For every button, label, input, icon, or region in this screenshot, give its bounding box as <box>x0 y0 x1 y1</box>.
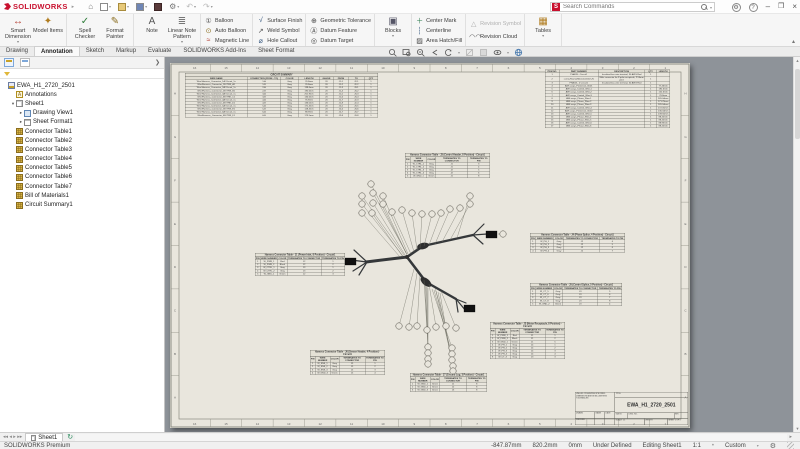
tree-item-label: Sheet Format1 <box>33 119 73 125</box>
flyout-caret-icon[interactable]: ▾ <box>17 40 19 44</box>
tab-annotation[interactable]: Annotation <box>34 46 80 56</box>
units-selector[interactable]: Custom <box>725 443 746 449</box>
filter-icon[interactable] <box>4 72 10 76</box>
open-button[interactable]: ▾ <box>118 3 129 11</box>
format-painter-icon: ✎ <box>111 16 119 28</box>
table-cell: W_CT_3 <box>495 356 510 359</box>
vertical-scroll-thumb[interactable] <box>795 69 800 139</box>
balloon-leader <box>362 213 400 257</box>
geometric-tolerance-button[interactable]: ⊕Geometric Tolerance <box>309 16 371 25</box>
tab-evaluate[interactable]: Evaluate <box>142 46 177 56</box>
scroll-up-icon[interactable]: ▲ <box>794 58 800 63</box>
balloon-icon: ① <box>204 17 213 25</box>
tree-item-drawing-view1[interactable]: ▸Drawing View1 <box>0 109 164 118</box>
table-cell: 17 <box>545 125 559 128</box>
display-style-icon[interactable] <box>479 48 488 57</box>
table-row: 4W_PH_4GrayJ27 <box>530 249 625 252</box>
button-label: Surface Finish <box>267 18 302 24</box>
table-cell: W_GND_2 <box>535 302 553 305</box>
balloon-leader <box>429 213 441 245</box>
tree-filter-row <box>0 69 164 79</box>
balloon-leader <box>392 212 411 254</box>
balloon[interactable] <box>425 361 431 367</box>
tree-item-label: Connector Table1 <box>25 129 72 135</box>
table-cell: W_GND_3 <box>315 371 330 374</box>
tree-item-connector-table5[interactable]: Connector Table5 <box>0 164 164 173</box>
hole-callout-button[interactable]: ⌀Hole Callout <box>256 36 302 45</box>
zone-label: 11 <box>350 422 353 426</box>
previous-view-icon[interactable] <box>430 48 439 57</box>
ribbon-group: ↔Smart Dimension▾✦Model Items <box>0 14 67 46</box>
balloon[interactable] <box>449 351 455 357</box>
options-gear-button[interactable]: ⚙ <box>732 3 741 12</box>
minimize-button[interactable]: – <box>766 0 770 14</box>
balloon[interactable] <box>369 210 375 216</box>
table-cell: Insulated bus wire terminal, 30 AWG Red <box>598 82 645 85</box>
home-button[interactable]: ⌂ <box>88 2 93 11</box>
table-cell: Wire/Harness_Connector_6B /TRK_F1 <box>185 114 247 117</box>
tab-markup[interactable]: Markup <box>110 46 142 56</box>
button-label: Revision Cloud <box>480 34 517 40</box>
zone-label: C <box>684 309 687 313</box>
balloon-leader <box>409 273 417 327</box>
sheet-tab-icon <box>31 435 36 441</box>
zone-label: E <box>684 222 686 226</box>
app-edition-label: SOLIDWORKS Premium <box>0 443 70 449</box>
search-logo-icon: S <box>552 3 560 11</box>
ribbon-group: √Surface Finish↗Weld Symbol⌀Hole Callout <box>253 14 306 46</box>
tree-item-ewa-h1-2720-2501[interactable]: EWA_H1_2720_2501 <box>0 81 164 90</box>
ribbon-collapse-icon[interactable]: ▴ <box>792 38 795 45</box>
table-row: 5W_GND_2GreenJ34 <box>530 302 622 305</box>
balloon[interactable] <box>419 211 425 217</box>
balloon[interactable] <box>414 323 420 329</box>
area-hatch-fill-button[interactable]: ▨Area Hatch/Fill <box>415 36 462 45</box>
datum-feature-icon: Ⓐ <box>309 26 318 36</box>
table-row: 4W_GND_3GreenJ54 <box>310 371 385 374</box>
harness-segment[interactable] <box>473 234 487 235</box>
balloon[interactable] <box>425 350 431 356</box>
weld-symbol-button[interactable]: ↗Weld Symbol <box>256 26 302 35</box>
cursor-x: -847.87mm <box>491 443 521 449</box>
ribbon-group: ✓Spell Checker✎Format Painter <box>67 14 134 46</box>
balloon[interactable] <box>449 357 455 363</box>
harness-segment[interactable] <box>423 235 473 246</box>
table-cell: J1 <box>436 175 468 178</box>
balloon-leader <box>434 290 452 354</box>
save-button[interactable]: ▾ <box>136 3 147 11</box>
dropdown-caret-icon[interactable]: ▾ <box>458 50 460 55</box>
blocks-icon: ▣ <box>388 16 397 28</box>
datum-feature-button[interactable]: ⒶDatum Feature <box>309 26 371 35</box>
note-button[interactable]: ANote <box>137 15 167 34</box>
balloon-leader <box>424 214 432 246</box>
balloon[interactable] <box>500 231 506 237</box>
balloon[interactable] <box>368 181 374 187</box>
zone-label: 8 <box>445 422 447 426</box>
table-cell: 4 <box>365 371 385 374</box>
table-cell: Green <box>553 302 563 305</box>
table-row: 5W_GND_1GreenJ18 <box>405 175 490 178</box>
zone-label: A <box>174 395 176 399</box>
table-cell: 3 <box>321 272 345 275</box>
ribbon-group: △Revision Symbol◠◠Revision Cloud <box>466 14 525 46</box>
zone-label: D <box>174 265 177 269</box>
table-cell: Green <box>278 272 287 275</box>
balloon-leader <box>383 196 408 254</box>
balloon[interactable] <box>438 210 444 216</box>
title-block-cell <box>595 418 605 425</box>
balloon[interactable] <box>443 323 449 329</box>
tab-drawing[interactable]: Drawing <box>0 46 34 56</box>
tree-item-connector-table6[interactable]: Connector Table6 <box>0 173 164 182</box>
title-block-cell: EWA_H1_2720_2501 <box>615 398 688 413</box>
balloon[interactable] <box>447 206 453 212</box>
sheet-nav-buttons[interactable]: ◂◂ ◂ ▸ ▸▸ <box>0 434 25 440</box>
balloon-button[interactable]: ①Balloon <box>204 16 249 25</box>
spell-checker-button[interactable]: ✓Spell Checker <box>70 15 100 40</box>
magnetic-line-icon: ≈ <box>204 37 213 44</box>
panel-tabs: ❯ <box>0 57 164 69</box>
window-controls: ⚙ ? – ❒ × <box>732 0 797 14</box>
new-doc-icon <box>100 3 108 11</box>
tree-item-label: Connector Table6 <box>25 174 72 180</box>
menu-expand-icon[interactable]: ▸ <box>72 4 75 10</box>
balloon[interactable] <box>370 190 376 196</box>
table-cell: W_GND_1 <box>410 175 427 178</box>
connector-label[interactable] <box>486 231 497 238</box>
harness-segment[interactable] <box>473 224 484 235</box>
flyout-caret-icon[interactable]: ▾ <box>181 40 183 44</box>
display-manager-tab-icon[interactable] <box>20 58 30 67</box>
balloon[interactable] <box>359 193 365 199</box>
tree-item-connector-table4[interactable]: Connector Table4 <box>0 155 164 164</box>
tree-item-circuit-summary1[interactable]: Circuit Summary1 <box>0 200 164 209</box>
ribbon-group: ▣Blocks▾ <box>375 14 412 46</box>
table-cell: Green <box>330 371 339 374</box>
zone-label: 13 <box>287 66 291 70</box>
tab-sketch[interactable]: Sketch <box>80 46 110 56</box>
close-button[interactable]: × <box>792 0 797 14</box>
options-button[interactable]: ⚙▾ <box>169 2 179 11</box>
linear-note-pattern-icon: ≣ <box>178 16 186 28</box>
table-cell: 8 <box>467 389 487 392</box>
connector-table-2[interactable]: Harness Connector Table - J1 (Power Inle… <box>255 253 345 276</box>
balloon[interactable] <box>380 201 386 207</box>
button-label: Model Items <box>33 28 63 34</box>
solidworks-logo[interactable]: SOLIDWORKS ▸ <box>4 2 74 11</box>
ribbon-group: ANote≣Linear Note Pattern▾ <box>134 14 201 46</box>
panel-expand-icon[interactable]: ❯ <box>155 59 160 66</box>
search-icon[interactable] <box>701 4 708 11</box>
auto-balloon-button[interactable]: ⊙Auto Balloon <box>204 26 249 35</box>
solidworks-logo-icon <box>4 3 11 10</box>
zoom-area-icon[interactable] <box>402 48 411 57</box>
centerline-icon: ┆ <box>415 27 424 35</box>
feature-tree: EWA_H1_2720_2501AAnnotations▾Sheet1▸Draw… <box>0 79 164 210</box>
bill-of-materials-table[interactable]: ITEM NO.PART NUMBERDESCRIPTIONQTY.LENGTH… <box>545 70 670 128</box>
table-cell: Gray <box>554 249 564 252</box>
zone-label: 14 <box>256 422 260 426</box>
button-label: Revision Symbol <box>480 21 521 27</box>
table-icon <box>16 128 23 135</box>
feature-manager-panel: ❯ EWA_H1_2720_2501AAnnotations▾Sheet1▸Dr… <box>0 57 165 432</box>
zone-label: H <box>174 92 176 96</box>
table-cell <box>598 125 645 128</box>
table-row: 17AWI assys_Phase_Wire-6188.45mm <box>545 125 670 128</box>
search-dropdown-icon[interactable]: ▾ <box>710 5 712 10</box>
table-cell: 1 <box>364 114 378 117</box>
zoom-inout-icon[interactable] <box>416 48 425 57</box>
view-orientation-icon[interactable] <box>514 48 523 57</box>
title-bar: SOLIDWORKS ▸ ⌂ ▾ ▾ ▾ ⚙▾ ↶▾ ↷▾ S ▾ ⚙ ? – … <box>0 0 800 14</box>
table-cell: 4 <box>598 302 622 305</box>
scroll-down-icon[interactable]: ▼ <box>794 426 800 431</box>
tab-sheet-format[interactable]: Sheet Format <box>252 46 300 56</box>
balloon[interactable] <box>453 325 459 331</box>
definition-state: Under Defined <box>593 443 632 449</box>
balloon[interactable] <box>429 211 435 217</box>
area-hatch-icon: ▨ <box>415 37 424 45</box>
linear-note-pattern-button[interactable]: ≣Linear Note Pattern▾ <box>167 15 197 44</box>
title-block-cell: WEIGHT: <box>644 418 667 425</box>
balloon[interactable] <box>406 324 412 330</box>
connector-table-6[interactable]: Harness Connector Table - J6 (Sensor Hea… <box>310 350 385 375</box>
button-label: Centerline <box>426 28 451 34</box>
connector-table-4[interactable]: Harness Connector Table - J5 (Control Sp… <box>530 283 622 306</box>
smart-dimension-button[interactable]: ↔Smart Dimension▾ <box>3 15 33 44</box>
model-items-button[interactable]: ✦Model Items <box>33 15 63 34</box>
table-cell: J3 <box>563 302 598 305</box>
balloon-leader <box>412 213 417 250</box>
zone-label: 14 <box>256 66 260 70</box>
balloon-leader <box>420 214 422 248</box>
tree-item-annotations[interactable]: AAnnotations <box>0 90 164 99</box>
title-block-cell: UNLESS OTHERWISE SPECIFIED:DIMENSIONS AR… <box>575 392 615 412</box>
balloon[interactable] <box>359 201 365 207</box>
revision-cloud-button[interactable]: ◠◠Revision Cloud <box>469 33 521 42</box>
tree-item-connector-table7[interactable]: Connector Table7 <box>0 182 164 191</box>
table-icon <box>16 146 23 153</box>
datum-target-button[interactable]: ◎Datum Target <box>309 36 371 45</box>
vertical-scrollbar[interactable]: ▲ ▼ <box>793 57 800 432</box>
connector-table-7[interactable]: Harness Connector Table - J7 (Ground Lug… <box>410 373 487 392</box>
zone-label: 4 <box>570 422 572 426</box>
print-icon <box>154 3 162 11</box>
status-gear-icon[interactable]: ⚙ <box>770 442 776 449</box>
weld-symbol-icon: ↗ <box>256 27 265 35</box>
zone-label: 8 <box>445 66 447 70</box>
connector-table-3[interactable]: Harness Connector Table - J4 (Phase Spli… <box>530 233 625 252</box>
solidworks-window: SOLIDWORKS ▸ ⌂ ▾ ▾ ▾ ⚙▾ ↶▾ ↷▾ S ▾ ⚙ ? – … <box>0 0 800 449</box>
view-icon <box>24 110 31 117</box>
balloon[interactable] <box>396 323 402 329</box>
graphics-area[interactable]: 1616151514141313121211111010998877665544… <box>165 57 793 432</box>
table-cell: J2 <box>564 249 600 252</box>
surface-finish-button[interactable]: √Surface Finish <box>256 16 302 25</box>
revision-symbol-button[interactable]: △Revision Symbol <box>469 19 521 28</box>
tree-item-connector-table1[interactable]: Connector Table1 <box>0 127 164 136</box>
zone-label: 10 <box>381 66 385 70</box>
connector-label[interactable] <box>464 305 475 312</box>
zone-label: H <box>684 92 686 96</box>
table-cell: J2 <box>287 272 321 275</box>
rebuild-icon[interactable]: ↻ <box>67 433 73 441</box>
quick-access-toolbar: ⌂ ▾ ▾ ▾ ⚙▾ ↶▾ ↷▾ <box>88 2 213 11</box>
flyout-caret-icon[interactable]: ▾ <box>392 34 394 38</box>
dropdown-caret-icon[interactable]: ▾ <box>507 50 509 55</box>
circuit-summary-table[interactable]: CIRCUIT SUMMARYWIRE NAMECONNECTION (FROM… <box>185 73 378 117</box>
zone-label: 6 <box>508 422 510 426</box>
harness-segment[interactable] <box>366 257 407 262</box>
editing-mode: Editing Sheet1 <box>643 443 682 449</box>
section-view-icon[interactable] <box>465 48 474 57</box>
table-icon <box>16 137 23 144</box>
help-button[interactable]: ? <box>749 3 758 12</box>
zoom-fit-icon[interactable] <box>388 48 397 57</box>
hole-callout-icon: ⌀ <box>256 37 265 45</box>
horizontal-scrollbar[interactable] <box>75 434 787 441</box>
rotate-view-icon[interactable] <box>444 48 453 57</box>
new-document-button[interactable]: ▾ <box>100 3 111 11</box>
title-block-cell: CHECKED <box>575 418 595 425</box>
model-items-icon: ✦ <box>44 16 52 28</box>
table-cell: J3 <box>519 356 545 359</box>
table-cell: AWI assys_Phase_Wire-6 <box>559 125 598 128</box>
auto-balloon-icon: ⊙ <box>204 27 213 35</box>
hide-show-icon[interactable] <box>493 48 502 57</box>
connector-table-1[interactable]: Harness Connector Table - J3 (Control He… <box>405 153 490 178</box>
zone-label: E <box>174 222 176 226</box>
search-input[interactable] <box>560 4 701 10</box>
tree-item-sheet-format1[interactable]: ▸Sheet Format1 <box>0 118 164 127</box>
balloon[interactable] <box>449 345 455 351</box>
balloon[interactable] <box>433 324 439 330</box>
undo-button[interactable]: ↶▾ <box>186 2 196 11</box>
button-label: Balloon <box>215 18 233 24</box>
button-label: Magnetic Line <box>215 38 249 44</box>
title-block[interactable]: UNLESS OTHERWISE SPECIFIED:DIMENSIONS AR… <box>575 392 688 425</box>
harness-segment[interactable] <box>473 235 483 244</box>
print-button[interactable] <box>154 3 162 11</box>
table-icon <box>16 202 23 209</box>
balloon[interactable] <box>380 193 386 199</box>
table-cell: 8 <box>468 175 490 178</box>
button-label: Center Mark <box>426 18 456 24</box>
balloon[interactable] <box>457 205 463 211</box>
balloon-leader <box>417 276 420 326</box>
zone-label: B <box>684 352 686 356</box>
smart-dimension-icon: ↔ <box>13 16 23 28</box>
connector-label[interactable] <box>345 258 356 265</box>
balloon[interactable] <box>467 193 473 199</box>
tab-solidworks-add-ins[interactable]: SOLIDWORKS Add-Ins <box>177 46 252 56</box>
resize-grip[interactable] <box>787 442 794 449</box>
balloon[interactable] <box>425 344 431 350</box>
tree-item-bill-of-materials1[interactable]: Bill of Materials1 <box>0 191 164 200</box>
zone-label: 7 <box>476 66 478 70</box>
blocks-button[interactable]: ▣Blocks▾ <box>378 15 408 38</box>
flyout-caret-icon[interactable]: ▾ <box>542 34 544 38</box>
title-block-cell <box>605 418 615 425</box>
zone-label: 9 <box>413 422 415 426</box>
tree-item-sheet1[interactable]: ▾Sheet1 <box>0 99 164 108</box>
balloon[interactable] <box>370 200 376 206</box>
zone-label: 5 <box>539 66 541 70</box>
button-label: Format Painter <box>100 28 130 40</box>
cursor-z: 0mm <box>569 443 582 449</box>
tree-item-label: Connector Table3 <box>25 147 72 153</box>
tree-item-connector-table2[interactable]: Connector Table2 <box>0 136 164 145</box>
balloon[interactable] <box>389 209 395 215</box>
tree-item-label: Connector Table5 <box>25 165 72 171</box>
restore-button[interactable]: ❒ <box>778 0 784 14</box>
table-row: 8W_CT_3GrayJ33 <box>490 356 565 359</box>
button-label: Datum Target <box>320 38 353 44</box>
drawing-sheet[interactable]: 1616151514141313121211111010998877665544… <box>170 63 690 428</box>
status-bar: SOLIDWORKS Premium -847.87mm 820.2mm 0mm… <box>0 441 800 449</box>
tree-item-connector-table3[interactable]: Connector Table3 <box>0 145 164 154</box>
redo-button[interactable]: ↷▾ <box>203 2 213 11</box>
button-label: Note <box>146 28 158 34</box>
tables-button[interactable]: ▦Tables▾ <box>528 15 558 38</box>
scroll-right-icon[interactable]: ▸ <box>789 434 800 440</box>
table-row: 3W_GND_3GreenJ38 <box>410 389 487 392</box>
zone-label: B <box>174 352 176 356</box>
table-cell: 3 <box>545 356 565 359</box>
table-cell: J3 <box>440 389 467 392</box>
title-block-cell: SHEET 1 OF 1 <box>667 418 688 425</box>
center-mark-button[interactable]: ＋Center Mark <box>415 16 462 25</box>
format-painter-button[interactable]: ✎Format Painter <box>100 15 130 40</box>
zone-label: 15 <box>224 422 228 426</box>
zone-label: 16 <box>193 66 197 70</box>
connector-table-5[interactable]: Harness Connector Table - J2 (Motor Rece… <box>490 322 565 359</box>
open-folder-icon <box>118 3 126 11</box>
search-commands-box[interactable]: S ▾ <box>550 2 715 12</box>
format-icon <box>24 119 31 126</box>
status-right-cluster: -847.87mm 820.2mm 0mm Under Defined Edit… <box>491 442 800 449</box>
zone-label: 13 <box>287 422 291 426</box>
balloon[interactable] <box>409 210 415 216</box>
balloon[interactable] <box>399 207 405 213</box>
doc-icon <box>8 82 15 89</box>
sheet-scale[interactable]: 1:1 <box>693 443 701 449</box>
magnetic-line-button[interactable]: ≈Magnetic Line <box>204 36 249 45</box>
units-dropdown-icon[interactable]: ▾ <box>757 443 759 448</box>
balloon[interactable] <box>467 201 473 207</box>
centerline-button[interactable]: ┆Centerline <box>415 26 462 35</box>
note-icon: A <box>16 91 23 98</box>
tree-item-label: Bill of Materials1 <box>25 193 69 199</box>
balloon[interactable] <box>424 327 430 333</box>
junction-node[interactable] <box>405 255 409 259</box>
sheet-tab-sheet1[interactable]: Sheet1 <box>25 433 63 441</box>
zone-label: G <box>684 135 687 139</box>
balloon-leader <box>373 193 407 254</box>
tree-item-label: Sheet1 <box>25 101 44 107</box>
tree-item-label: Connector Table2 <box>25 138 72 144</box>
zone-label: G <box>174 135 177 139</box>
tables-icon: ▦ <box>538 16 547 28</box>
sheet-icon <box>16 100 23 107</box>
balloon[interactable] <box>359 210 365 216</box>
ribbon-group: ①Balloon⊙Auto Balloon≈Magnetic Line <box>201 14 253 46</box>
command-manager-ribbon: ↔Smart Dimension▾✦Model Items✓Spell Chec… <box>0 14 800 47</box>
button-label: Hole Callout <box>267 38 297 44</box>
feature-tree-tab-icon[interactable] <box>4 58 14 67</box>
zone-label: C <box>174 309 177 313</box>
